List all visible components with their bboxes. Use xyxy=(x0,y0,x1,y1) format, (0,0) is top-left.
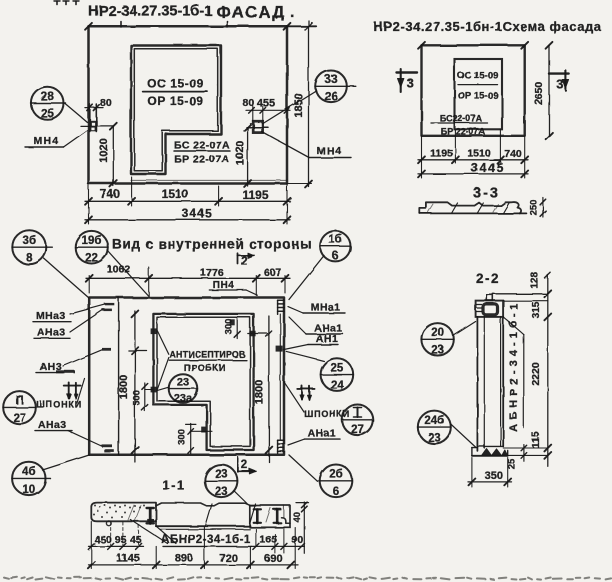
svg-text:1800: 1800 xyxy=(254,380,266,404)
svg-text:2220: 2220 xyxy=(530,362,542,386)
svg-text:АНа1: АНа1 xyxy=(308,427,336,439)
svg-text:АБНР2-34-1б-1: АБНР2-34-1б-1 xyxy=(508,299,520,432)
svg-text:720: 720 xyxy=(219,553,237,565)
svg-text:315: 315 xyxy=(531,301,542,318)
svg-text:НР2-34.27.35-1б-1: НР2-34.27.35-1б-1 xyxy=(88,4,212,20)
svg-text:МНа3: МНа3 xyxy=(36,310,66,322)
svg-text:33: 33 xyxy=(324,72,338,86)
svg-text:2б: 2б xyxy=(329,469,343,481)
svg-text:28: 28 xyxy=(41,89,55,103)
svg-text:25: 25 xyxy=(507,458,518,469)
svg-text:ФАСАД: ФАСАД xyxy=(216,3,286,22)
svg-text:АНТИСЕПТИРОВ: АНТИСЕПТИРОВ xyxy=(170,349,246,359)
svg-text:3445: 3445 xyxy=(471,161,505,175)
svg-text:1145: 1145 xyxy=(116,553,140,565)
svg-text:128: 128 xyxy=(529,272,540,289)
svg-text:23: 23 xyxy=(177,376,189,388)
svg-text:26: 26 xyxy=(324,89,338,103)
svg-text:3б: 3б xyxy=(23,235,37,247)
svg-text:3445: 3445 xyxy=(182,206,213,220)
svg-text:БР 22-07А: БР 22-07А xyxy=(174,153,230,165)
svg-text:350: 350 xyxy=(485,470,503,482)
svg-text:1510: 1510 xyxy=(162,187,189,201)
svg-text:25: 25 xyxy=(41,106,55,120)
svg-text:МНа1: МНа1 xyxy=(311,301,341,313)
svg-text:2650: 2650 xyxy=(533,82,545,106)
svg-text:ОР 15-09: ОР 15-09 xyxy=(147,94,203,108)
svg-text:1510: 1510 xyxy=(467,148,491,160)
svg-text:23: 23 xyxy=(215,486,228,498)
svg-text:890: 890 xyxy=(175,553,193,565)
svg-text:1195: 1195 xyxy=(430,148,453,160)
svg-text:БР 22-07А: БР 22-07А xyxy=(441,126,486,136)
svg-text:22: 22 xyxy=(85,252,98,264)
svg-text:6: 6 xyxy=(333,486,339,498)
svg-text:Вид с внутренней стороны: Вид с внутренней стороны xyxy=(112,237,312,252)
svg-text:607: 607 xyxy=(264,267,282,279)
svg-text:2: 2 xyxy=(241,256,247,268)
svg-text:1062: 1062 xyxy=(107,264,131,276)
svg-text:80: 80 xyxy=(243,97,255,109)
svg-text:4б: 4б xyxy=(22,466,36,478)
svg-text:90: 90 xyxy=(292,534,304,546)
svg-text:500: 500 xyxy=(131,390,142,406)
svg-text:23: 23 xyxy=(215,469,228,481)
svg-text:БС 22-07А: БС 22-07А xyxy=(174,140,230,152)
svg-text:НР2-34.27.35-1бн-1Схема фасада: НР2-34.27.35-1бн-1Схема фасада xyxy=(374,19,602,34)
svg-text:80: 80 xyxy=(100,97,112,109)
svg-text:455: 455 xyxy=(257,97,275,109)
svg-text:27: 27 xyxy=(351,424,364,436)
svg-text:1-1: 1-1 xyxy=(162,477,185,492)
svg-text:ОС 15-09: ОС 15-09 xyxy=(457,71,498,82)
svg-text:3-3: 3-3 xyxy=(473,186,500,202)
svg-text:ОР 15-09: ОР 15-09 xyxy=(457,91,498,102)
svg-text:2: 2 xyxy=(241,460,247,472)
svg-text:40: 40 xyxy=(292,512,303,523)
svg-text:6: 6 xyxy=(332,251,338,263)
svg-text:1020: 1020 xyxy=(235,141,247,165)
svg-text:2-2: 2-2 xyxy=(476,271,500,286)
svg-text:1776: 1776 xyxy=(200,267,224,279)
svg-text:3: 3 xyxy=(556,77,563,92)
svg-text:300: 300 xyxy=(176,429,187,445)
svg-text:МН4: МН4 xyxy=(34,135,60,147)
svg-text:115: 115 xyxy=(531,431,542,448)
svg-text:АНа3: АНа3 xyxy=(37,327,65,339)
svg-text:АН1: АН1 xyxy=(316,333,339,345)
svg-text:ОС 15-09: ОС 15-09 xyxy=(147,77,204,91)
svg-text:П: П xyxy=(15,395,23,407)
svg-text:МН4: МН4 xyxy=(317,145,343,157)
svg-text:19б: 19б xyxy=(82,235,102,247)
svg-text:8: 8 xyxy=(26,253,33,265)
svg-text:ШПОНКИ: ШПОНКИ xyxy=(36,400,82,410)
svg-text:1800: 1800 xyxy=(118,375,130,399)
svg-text:24: 24 xyxy=(331,380,344,392)
svg-text:1020: 1020 xyxy=(98,138,110,162)
svg-text:95: 95 xyxy=(115,534,127,546)
svg-text:690: 690 xyxy=(264,553,282,565)
svg-text:БС22-07А: БС22-07А xyxy=(440,113,483,123)
svg-text:1б: 1б xyxy=(329,234,343,246)
svg-text:1195: 1195 xyxy=(242,188,268,202)
svg-text:АБНР2-34-1б-1: АБНР2-34-1б-1 xyxy=(161,534,251,546)
svg-text:45: 45 xyxy=(130,534,142,546)
svg-text:20: 20 xyxy=(431,327,444,339)
svg-text:24б: 24б xyxy=(424,415,444,427)
svg-text:25: 25 xyxy=(331,362,344,374)
svg-text:ПРОБКИ: ПРОБКИ xyxy=(184,363,226,373)
svg-text:1850: 1850 xyxy=(293,93,305,117)
svg-text:10: 10 xyxy=(22,484,35,496)
svg-text:23: 23 xyxy=(431,344,444,356)
svg-text:23а: 23а xyxy=(174,393,193,405)
svg-text:450: 450 xyxy=(94,534,112,546)
svg-text:740: 740 xyxy=(100,187,120,201)
svg-text:300: 300 xyxy=(224,319,235,335)
svg-text:27: 27 xyxy=(13,413,26,425)
svg-text:740: 740 xyxy=(504,148,522,160)
svg-text:3: 3 xyxy=(407,76,414,91)
svg-text:250: 250 xyxy=(529,200,540,216)
svg-text:АНа3: АНа3 xyxy=(38,419,66,431)
svg-text:23: 23 xyxy=(428,432,441,444)
svg-text:.: . xyxy=(290,4,294,21)
